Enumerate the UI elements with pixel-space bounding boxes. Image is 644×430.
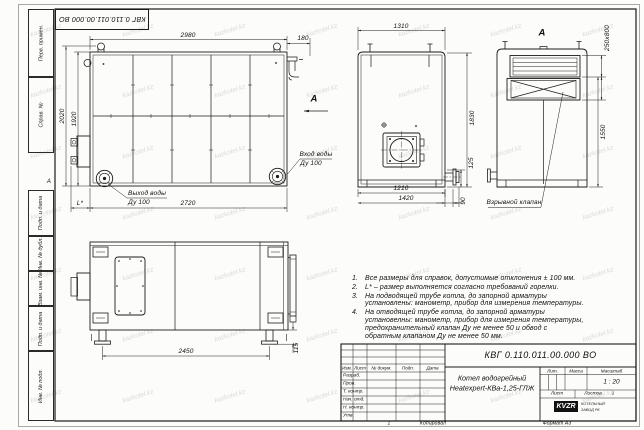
note-number: 4.: [352, 309, 365, 340]
fold-mark: 1: [388, 422, 391, 427]
margin-label: Подп. и дата: [38, 196, 44, 230]
note-item: 4.На отводящей трубе котла, до запорной …: [352, 309, 620, 340]
margin-box-podp-data-1: Подп. и дата: [28, 190, 54, 236]
note-text: На подводящей трубе котла, до запорной а…: [365, 293, 585, 309]
note-number: 1.: [352, 275, 365, 283]
doc-number-stamp: КВГ 0.110.011.00.000 ВО: [55, 9, 149, 30]
view-a: [488, 42, 588, 188]
col-list: Лист: [354, 366, 366, 371]
sheets-value: 1: [612, 392, 615, 397]
title-doc-number: КВГ 0.110.011.00.000 ВО: [485, 350, 597, 360]
margin-label: Инв. № дубл.: [38, 237, 44, 271]
copied-label: Копировал: [420, 422, 446, 427]
dim-plan-left-outer: 2020: [60, 108, 67, 123]
plan-view: [71, 43, 303, 187]
row-razrab: Разраб.: [343, 374, 360, 379]
title-product-name-1: Котел водогрейный: [458, 374, 526, 383]
margin-label: Перв. примен.: [38, 25, 44, 62]
note-text: Все размеры для справок, допустимые откл…: [365, 275, 585, 283]
side-view: [71, 242, 296, 344]
dim-front-stub-height: 125: [469, 157, 476, 168]
col-data: Дата: [426, 366, 438, 371]
drawing-sheet: kazkotel.kzkazkotel.kzkazkotel.kzkazkote…: [0, 0, 644, 430]
lit-label: Лит.: [547, 368, 558, 373]
dim-front-bottom-outer: 1420: [398, 196, 413, 203]
note-number: 2.: [352, 284, 365, 292]
note-number: 3.: [352, 293, 365, 309]
front-view: [358, 44, 462, 187]
dim-plan-bottom: 2720: [180, 201, 195, 208]
technical-notes: 1.Все размеры для справок, допустимые от…: [352, 275, 620, 342]
format-label: Формат А3: [543, 422, 572, 427]
margin-label: Справ. №: [38, 103, 44, 128]
col-podp: Подп.: [402, 366, 414, 371]
margin-label: Подп. и дата: [38, 311, 44, 345]
margin-box-inv-dubl: Инв. № дубл.: [28, 236, 54, 271]
note-item: 1.Все размеры для справок, допустимые от…: [352, 275, 620, 283]
margin-box-inv-podl: Инв. № подл.: [28, 351, 54, 421]
label-explosion-valve: Взрывной клапан: [486, 200, 541, 207]
drawing-linework: [0, 0, 644, 430]
col-izm: Изм.: [342, 366, 352, 371]
mass-label: Масса: [569, 368, 583, 373]
margin-box-sprav-no: Справ. №: [28, 77, 54, 153]
view-arrow-letter: А: [310, 94, 317, 104]
dim-front-stub-offset: 90: [461, 197, 468, 205]
dim-side-leg-span: 2450: [178, 349, 193, 356]
row-prov: Пров.: [343, 382, 356, 387]
note-text: На отводящей трубе котла, до запорной ар…: [365, 309, 585, 340]
scale-label: Масштаб: [601, 368, 622, 373]
company-name-2: ЗАВОД РК: [581, 408, 600, 412]
dim-front-top-width: 1310: [393, 24, 408, 31]
dim-side-foot: 115: [294, 343, 301, 354]
view-a-title: А: [538, 28, 545, 38]
dim-plan-left-inner: 1920: [72, 111, 79, 126]
sheets-label: Листов: [584, 392, 601, 397]
dim-view-a-valve-size: 250x800: [605, 25, 612, 51]
dim-view-a-height: 1550: [601, 124, 608, 139]
margin-box-perv-primen: Перв. примен.: [28, 9, 54, 77]
row-n-kontr: Н. контр.: [343, 406, 365, 411]
row-nach-otd: Нач. отд.: [343, 398, 365, 403]
label-water-outlet-dn: Ду 100: [128, 199, 149, 206]
margin-label: Взам. инв. №: [38, 271, 44, 305]
dim-front-bottom-inner: 1210: [393, 186, 408, 193]
note-item: 2.L* – размер выполняется согласно требо…: [352, 284, 620, 292]
dim-plan-top-right: 180: [297, 36, 308, 43]
row-utv: Утв.: [343, 414, 354, 419]
dim-front-height: 1830: [470, 110, 477, 125]
label-water-inlet: Вход воды: [300, 151, 333, 158]
margin-box-podp-data-2: Подп. и дата: [28, 306, 54, 351]
row-t-kontr: Т. контр.: [343, 390, 364, 395]
sheet-edge: [19, 5, 640, 427]
dim-plan-burner: L*: [77, 201, 83, 208]
margin-label: Инв. № подл.: [38, 369, 44, 403]
doc-number-stamp-text: КВГ 0.110.011.00.000 ВО: [59, 15, 146, 24]
title-product-name-2: Heatexpert-КВа-1,25-ГЛЖ: [450, 384, 535, 393]
col-doc-no: № докум.: [371, 366, 391, 371]
manufacturer-logo: KVZR: [554, 401, 578, 412]
label-water-inlet-dn: Ду 100: [300, 161, 321, 168]
zone-mark: А: [47, 179, 51, 185]
scale-value: 1 : 20: [603, 379, 619, 386]
note-item: 3.На подводящей трубе котла, до запорной…: [352, 293, 620, 309]
company-name-1: КОТЕЛЬНЫЙ: [581, 402, 605, 406]
dim-plan-top-width: 2980: [180, 33, 195, 40]
note-text: L* – размер выполняется согласно требова…: [365, 284, 585, 292]
sheet-label: Лист: [551, 392, 563, 397]
label-water-outlet: Выход воды: [128, 190, 166, 197]
margin-box-vzam-inv: Взам. инв. №: [28, 271, 54, 306]
